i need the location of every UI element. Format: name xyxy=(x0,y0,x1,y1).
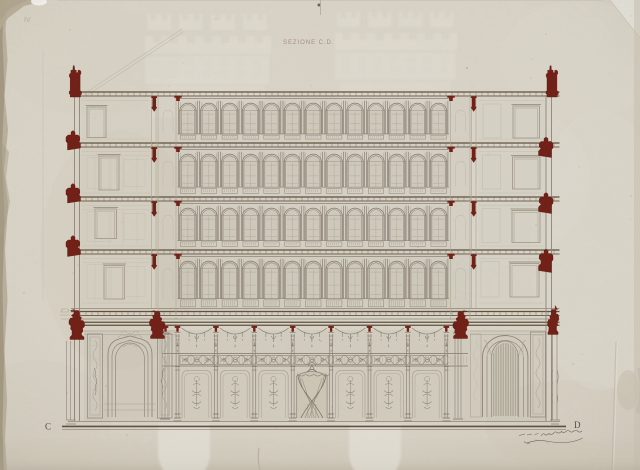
svg-text:D: D xyxy=(574,420,581,430)
svg-text:IV: IV xyxy=(24,17,31,24)
svg-text:SEZIONE C.D.: SEZIONE C.D. xyxy=(283,39,334,46)
svg-text:C: C xyxy=(45,422,51,432)
